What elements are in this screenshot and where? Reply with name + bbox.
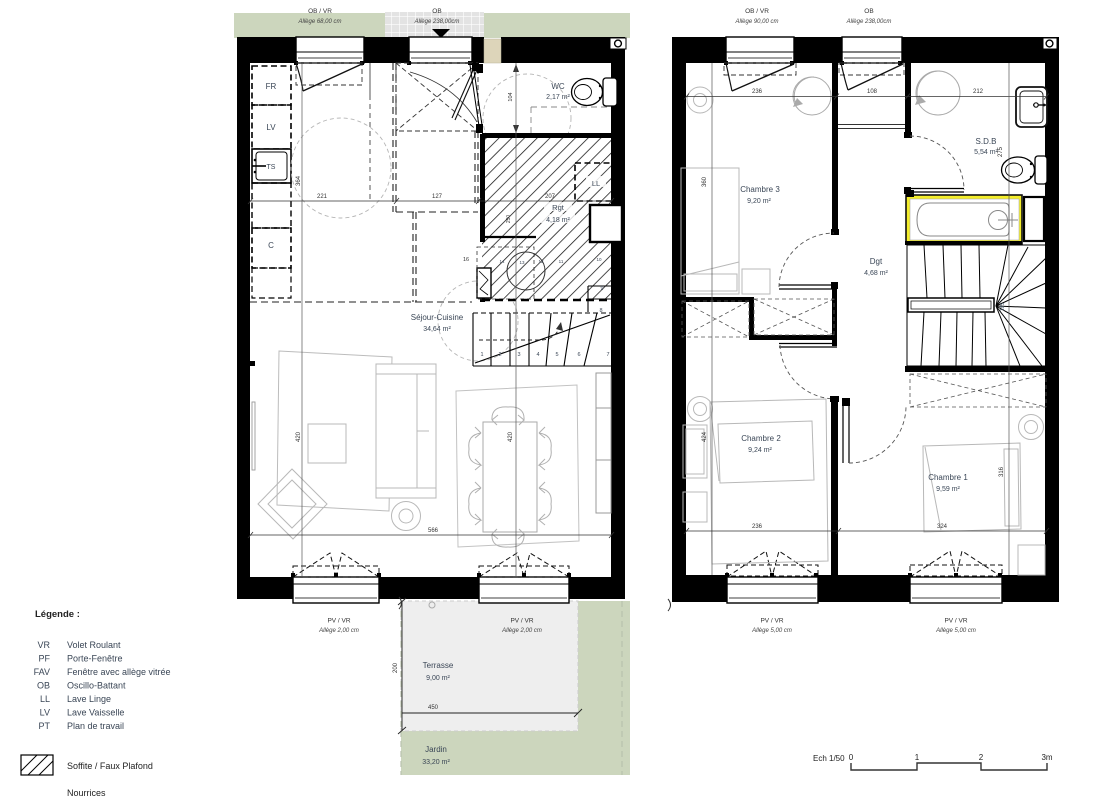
- svg-text:OB: OB: [432, 8, 441, 15]
- svg-text:0: 0: [849, 753, 854, 762]
- svg-text:Allège 5,00 cm: Allège 5,00 cm: [751, 628, 792, 634]
- svg-text:9: 9: [600, 286, 603, 292]
- svg-text:Soffite / Faux Plafond: Soffite / Faux Plafond: [67, 761, 153, 771]
- svg-text:S.D.B: S.D.B: [976, 137, 997, 146]
- svg-text:Chambre 1: Chambre 1: [928, 473, 968, 482]
- svg-text:PV / VR: PV / VR: [327, 618, 350, 625]
- svg-text:Allège 2,00 cm: Allège 2,00 cm: [501, 628, 542, 634]
- svg-text:PV / VR: PV / VR: [944, 618, 967, 625]
- svg-text:Nourrices: Nourrices: [67, 788, 106, 798]
- svg-text:5,54 m²: 5,54 m²: [974, 149, 998, 156]
- svg-text:12: 12: [538, 259, 544, 264]
- svg-text:C: C: [268, 241, 274, 250]
- svg-text:Lave Vaisselle: Lave Vaisselle: [67, 708, 124, 718]
- svg-text:OB: OB: [37, 681, 50, 691]
- svg-text:LV: LV: [266, 123, 276, 132]
- svg-text:Allège 68,00 cm: Allège 68,00 cm: [297, 19, 341, 25]
- svg-text:FAV: FAV: [34, 667, 50, 677]
- svg-text:PV / VR: PV / VR: [760, 618, 783, 625]
- svg-text:420: 420: [296, 431, 302, 442]
- svg-text:Volet Roulant: Volet Roulant: [67, 640, 121, 650]
- svg-text:2: 2: [498, 352, 501, 358]
- svg-text:LL: LL: [40, 694, 50, 704]
- svg-text:316: 316: [999, 466, 1005, 477]
- svg-text:Dgt: Dgt: [870, 257, 883, 266]
- svg-text:324: 324: [937, 524, 948, 530]
- svg-text:221: 221: [317, 194, 328, 200]
- svg-text:104: 104: [508, 92, 514, 101]
- svg-text:Lave Linge: Lave Linge: [67, 694, 111, 704]
- svg-text:Légende :: Légende :: [35, 609, 80, 620]
- svg-text:PF: PF: [38, 654, 50, 664]
- svg-text:360: 360: [702, 176, 708, 187]
- svg-text:TS: TS: [267, 164, 276, 171]
- svg-text:4,68 m²: 4,68 m²: [864, 270, 888, 277]
- svg-text:Allège 238,00cm: Allège 238,00cm: [846, 19, 892, 25]
- svg-text:13: 13: [519, 260, 525, 265]
- svg-text:34,64 m²: 34,64 m²: [423, 326, 451, 333]
- svg-text:9,24 m²: 9,24 m²: [748, 447, 772, 454]
- svg-text:2,17 m²: 2,17 m²: [546, 94, 570, 101]
- svg-text:5: 5: [555, 352, 558, 358]
- svg-text:424: 424: [702, 431, 708, 442]
- svg-text:14: 14: [499, 259, 505, 264]
- svg-text:OB / VR: OB / VR: [308, 8, 332, 15]
- svg-text:364: 364: [296, 175, 302, 186]
- svg-text:OB: OB: [864, 8, 873, 15]
- svg-text:8: 8: [599, 308, 602, 314]
- svg-text:33,20 m²: 33,20 m²: [422, 759, 450, 766]
- svg-text:Porte-Fenêtre: Porte-Fenêtre: [67, 654, 123, 664]
- svg-text:VR: VR: [37, 640, 50, 650]
- svg-text:275: 275: [998, 146, 1004, 157]
- svg-text:Chambre 2: Chambre 2: [741, 434, 781, 443]
- svg-text:Allège 5,00 cm: Allège 5,00 cm: [935, 628, 976, 634]
- svg-text:16: 16: [463, 257, 469, 263]
- svg-text:200: 200: [393, 662, 399, 673]
- svg-text:6: 6: [577, 352, 580, 358]
- svg-text:236: 236: [752, 89, 763, 95]
- svg-text:Allège 238,00cm: Allège 238,00cm: [414, 19, 460, 25]
- svg-text:FR: FR: [266, 82, 277, 91]
- svg-text:4,18 m²: 4,18 m²: [546, 217, 570, 224]
- svg-text:Allège 2,00 cm: Allège 2,00 cm: [318, 628, 359, 634]
- svg-text:Fenêtre avec allège vitrée: Fenêtre avec allège vitrée: [67, 667, 171, 677]
- svg-text:Rgt: Rgt: [552, 203, 565, 212]
- svg-text:207: 207: [545, 194, 556, 200]
- svg-text:11: 11: [559, 259, 564, 264]
- svg-text:250: 250: [506, 215, 512, 224]
- svg-text:LV: LV: [40, 708, 50, 718]
- svg-text:9,20 m²: 9,20 m²: [747, 198, 771, 205]
- svg-text:127: 127: [432, 194, 443, 200]
- svg-text:420: 420: [508, 431, 514, 442]
- svg-text:Terrasse: Terrasse: [423, 661, 454, 670]
- svg-text:Jardin: Jardin: [425, 745, 447, 754]
- svg-text:1: 1: [915, 753, 920, 762]
- svg-text:Plan de travail: Plan de travail: [67, 721, 124, 731]
- svg-text:Oscillo-Battant: Oscillo-Battant: [67, 681, 126, 691]
- svg-text:Allège 90,00 cm: Allège 90,00 cm: [734, 19, 778, 25]
- svg-text:108: 108: [867, 89, 878, 95]
- svg-text:9,59 m²: 9,59 m²: [936, 486, 960, 493]
- svg-text:3: 3: [517, 352, 520, 358]
- svg-text:1: 1: [480, 352, 483, 358]
- svg-text:Séjour-Cuisine: Séjour-Cuisine: [411, 313, 464, 322]
- svg-text:4: 4: [536, 352, 539, 358]
- svg-text:LL: LL: [592, 179, 600, 188]
- svg-text:Ech 1/50: Ech 1/50: [813, 754, 845, 763]
- svg-text:450: 450: [428, 705, 439, 711]
- svg-text:7: 7: [606, 352, 609, 358]
- svg-text:566: 566: [428, 528, 439, 534]
- svg-text:236: 236: [752, 524, 763, 530]
- svg-text:3m: 3m: [1041, 753, 1052, 762]
- svg-text:2: 2: [979, 753, 984, 762]
- svg-text:Chambre 3: Chambre 3: [740, 185, 780, 194]
- svg-text:10: 10: [596, 257, 602, 262]
- svg-text:PT: PT: [38, 721, 50, 731]
- svg-text:185: 185: [1000, 303, 1006, 312]
- svg-text:9,00 m²: 9,00 m²: [426, 675, 450, 682]
- svg-text:OB / VR: OB / VR: [745, 8, 769, 15]
- svg-text:PV / VR: PV / VR: [510, 618, 533, 625]
- svg-text:212: 212: [973, 89, 984, 95]
